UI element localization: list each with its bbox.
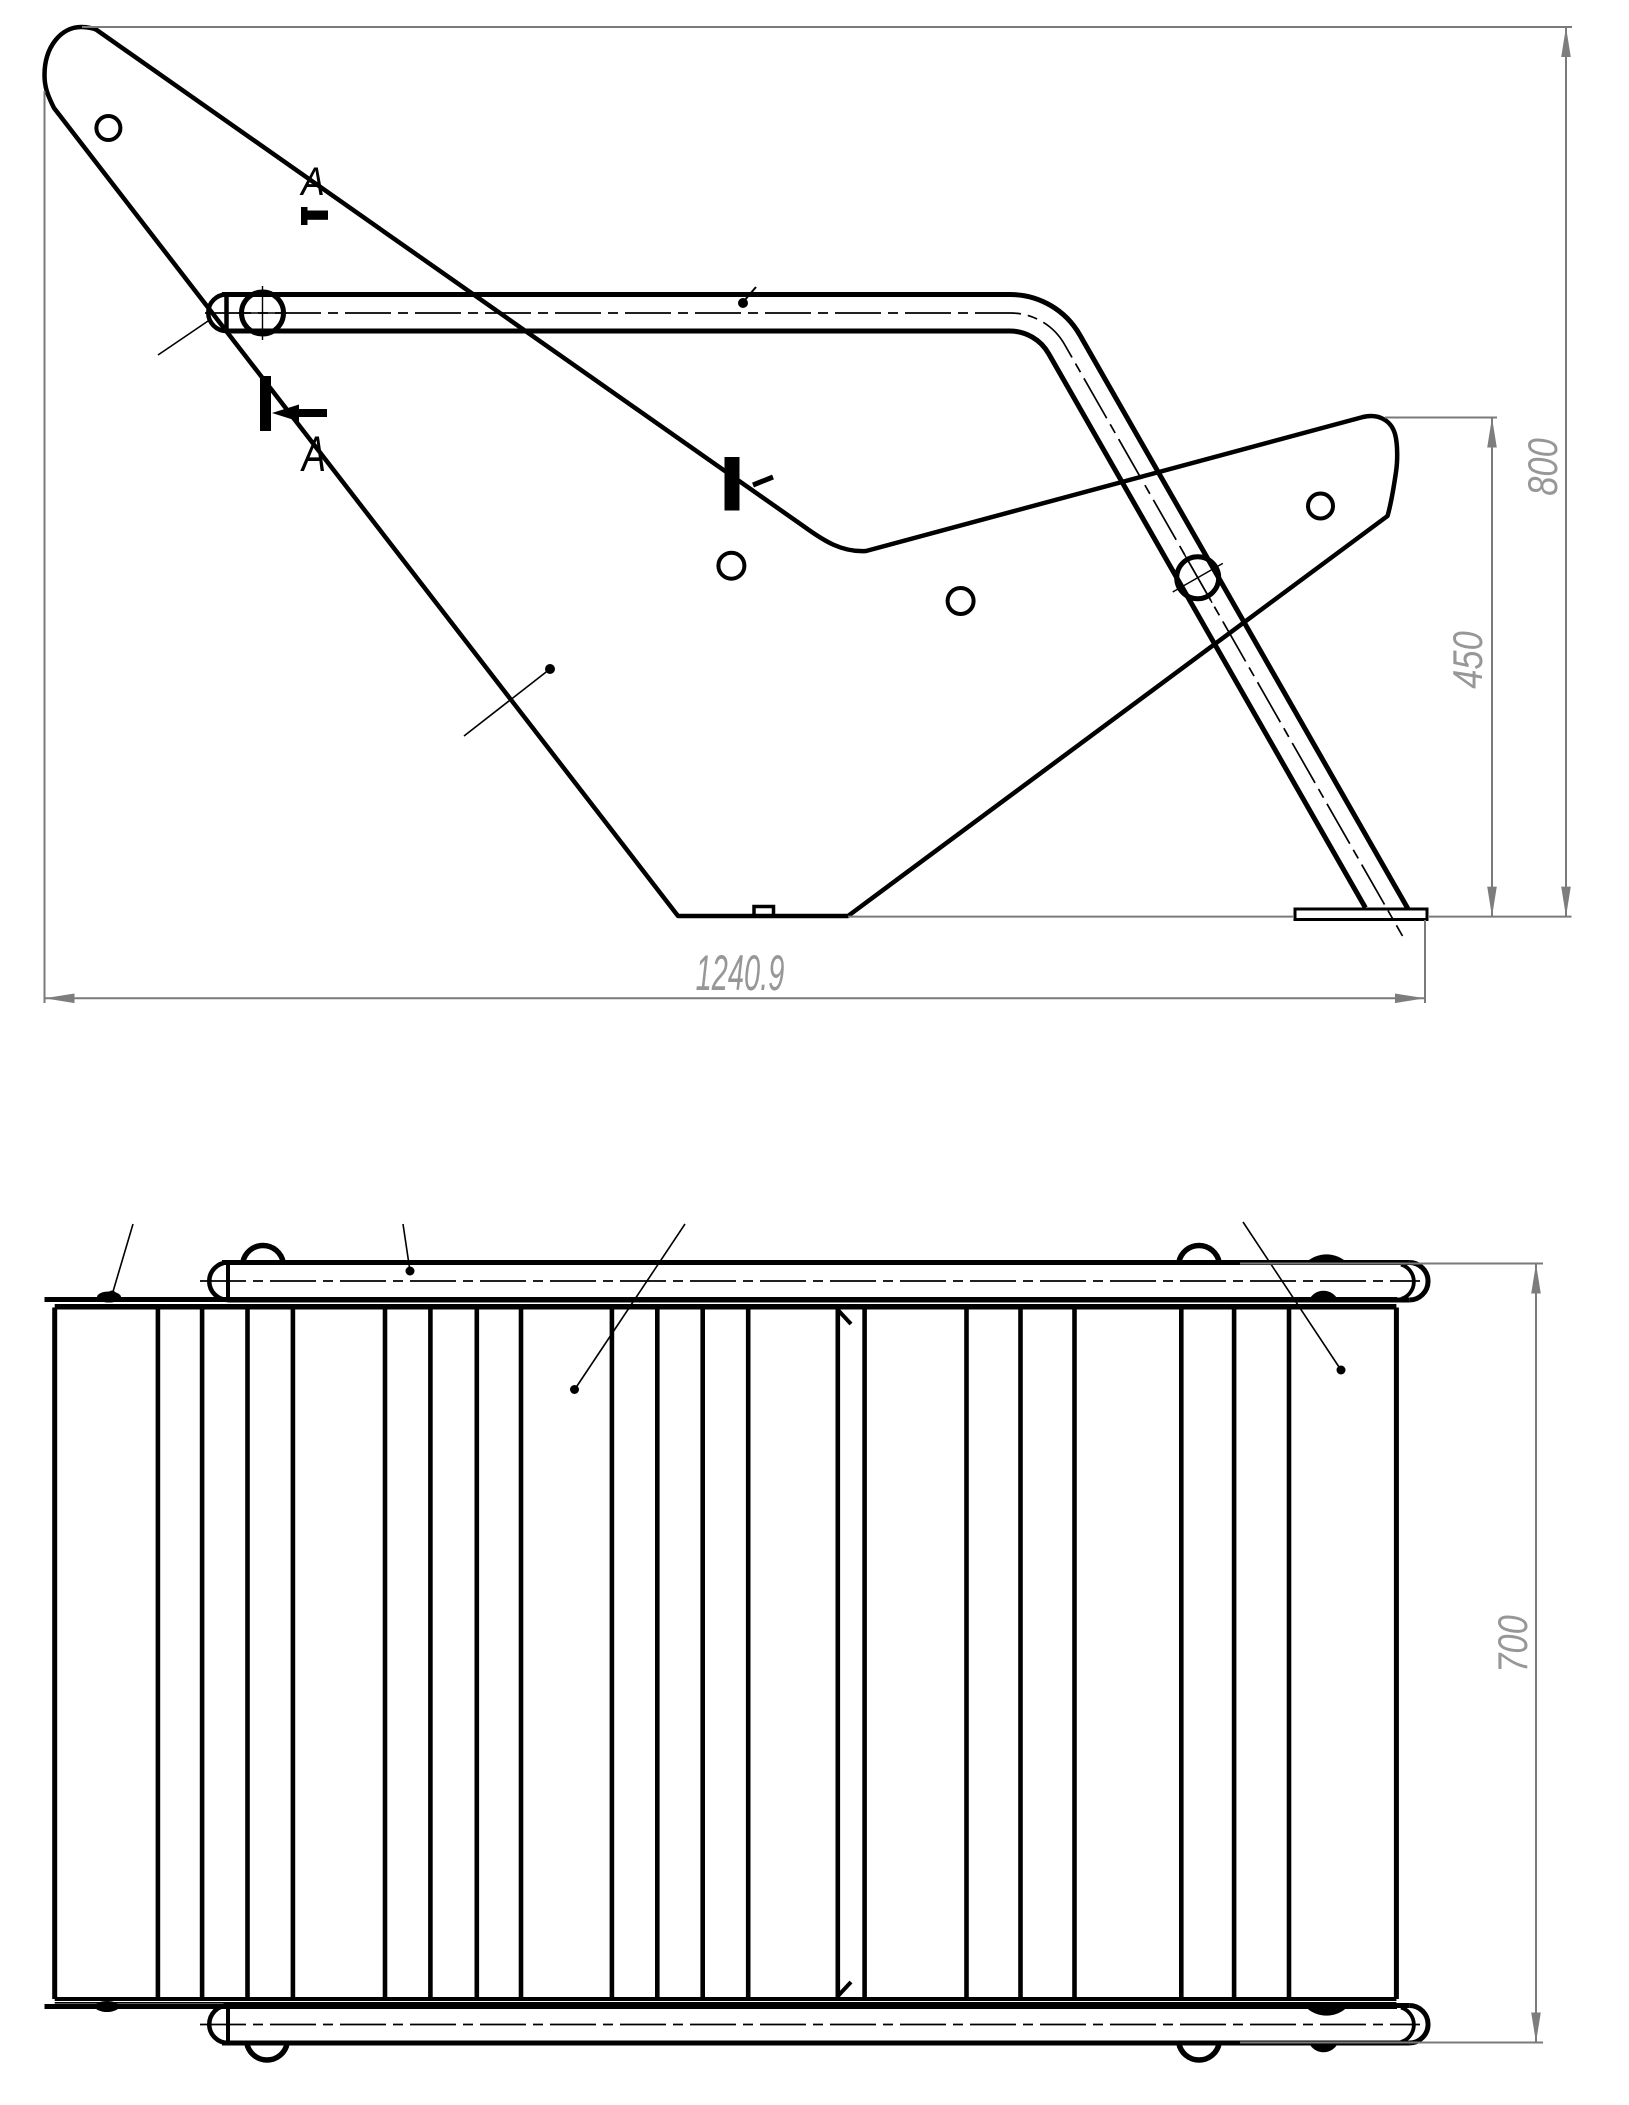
svg-text:700: 700 xyxy=(1490,1615,1537,1673)
svg-text:800: 800 xyxy=(1520,438,1567,496)
svg-text:1240.9: 1240.9 xyxy=(696,945,785,1001)
svg-text:450: 450 xyxy=(1445,631,1492,689)
svg-text:А: А xyxy=(299,159,324,204)
svg-text:А: А xyxy=(300,427,326,482)
